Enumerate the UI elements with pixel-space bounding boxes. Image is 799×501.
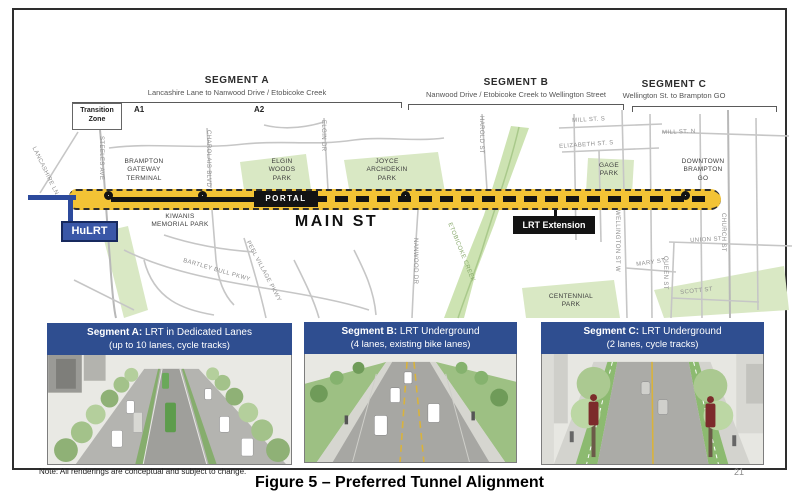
station-marker-1 (104, 191, 113, 200)
segment-a-subheading: (up to 10 lanes, cycle tracks) (47, 340, 292, 355)
tunnel-alignment-dashed-line (314, 196, 707, 202)
place-label-joyce-archdekin: JOYCE ARCHDEKIN PARK (354, 158, 420, 183)
segment-a-banner: Segment A: LRT in Dedicated Lanes (up to… (47, 323, 292, 355)
segment-a-rendering (47, 355, 292, 465)
segment-a-heading-rest: LRT in Dedicated Lanes (142, 327, 252, 338)
segment-c-rendering (541, 354, 764, 465)
segment-b-rendering (304, 354, 517, 463)
segment-a-card: Segment A: LRT in Dedicated Lanes (up to… (47, 323, 292, 465)
place-label-downtown-go: DOWNTOWN BRAMPTON GO (668, 158, 738, 183)
place-label-brampton-gateway: BRAMPTON GATEWAY TERMINAL (109, 158, 179, 183)
station-marker-3 (401, 191, 410, 200)
segment-c-card: Segment C: LRT Underground (2 lanes, cyc… (541, 322, 764, 465)
station-marker-2 (198, 191, 207, 200)
segment-b-subtitle: Nanwood Drive / Etobicoke Creek to Welli… (408, 90, 624, 99)
segment-b-banner: Segment B: LRT Underground (4 lanes, exi… (304, 322, 517, 354)
segment-c-bracket (632, 106, 777, 112)
segment-a-heading-bold: Segment A: (87, 327, 142, 338)
street-label: CHAROLAIS BLVD (205, 130, 211, 187)
main-st-label: MAIN ST (269, 213, 404, 231)
station-marker-4 (681, 191, 690, 200)
street-label: NANWOOD DR (412, 238, 418, 284)
street-label: HAROLD ST (478, 116, 484, 154)
segment-b-heading-bold: Segment B: (341, 326, 397, 337)
street-label: STEELES AVE (98, 136, 104, 180)
segment-c-subtitle: Wellington St. to Brampton GO (599, 91, 749, 100)
portal-label: PORTAL (254, 191, 318, 207)
street-label: MILL ST. N (662, 129, 696, 136)
segment-c-heading-bold: Segment C: (583, 326, 639, 337)
segment-c-subheading: (2 lanes, cycle tracks) (541, 339, 764, 354)
figure-caption: Figure 5 – Preferred Tunnel Alignment (0, 474, 799, 492)
place-label-kiwanis-park: KIWANIS MEMORIAL PARK (139, 213, 221, 230)
segment-c-title: SEGMENT C (599, 79, 749, 90)
street-label: WELLINGTON ST W (614, 210, 620, 272)
zone-a2-label: A2 (254, 105, 264, 114)
place-label-centennial-park: CENTENNIAL PARK (538, 293, 604, 310)
street-label: ELGIN DR (320, 120, 326, 152)
place-label-gage-park: GAGE PARK (586, 162, 632, 179)
figure-page: SEGMENT A Lancashire Lane to Nanwood Dri… (0, 0, 799, 501)
transition-zone-box: Transition Zone (72, 103, 122, 130)
segment-b-bracket (408, 104, 624, 110)
segment-b-card: Segment B: LRT Underground (4 lanes, exi… (304, 322, 517, 463)
segment-c-banner: Segment C: LRT Underground (2 lanes, cyc… (541, 322, 764, 354)
figure-frame: SEGMENT A Lancashire Lane to Nanwood Dri… (12, 8, 787, 470)
lrt-extension-label: LRT Extension (513, 216, 595, 234)
segment-a-subtitle: Lancashire Lane to Nanwood Drive / Etobi… (72, 88, 402, 97)
street-label: CHURCH ST (720, 213, 726, 252)
segment-a-title: SEGMENT A (72, 75, 402, 86)
zone-a1-label: A1 (134, 105, 144, 114)
segment-b-title: SEGMENT B (408, 77, 624, 88)
hulrt-line-connector (68, 199, 73, 223)
segment-b-heading-rest: LRT Underground (397, 326, 479, 337)
segment-c-heading-rest: LRT Underground (639, 326, 721, 337)
hulrt-label: HuLRT (61, 221, 118, 242)
street-label: QUEEN ST (662, 256, 668, 290)
surface-alignment-line (111, 197, 257, 202)
segment-b-subheading: (4 lanes, existing bike lanes) (304, 339, 517, 354)
place-label-elgin-woods: ELGIN WOODS PARK (254, 158, 310, 183)
